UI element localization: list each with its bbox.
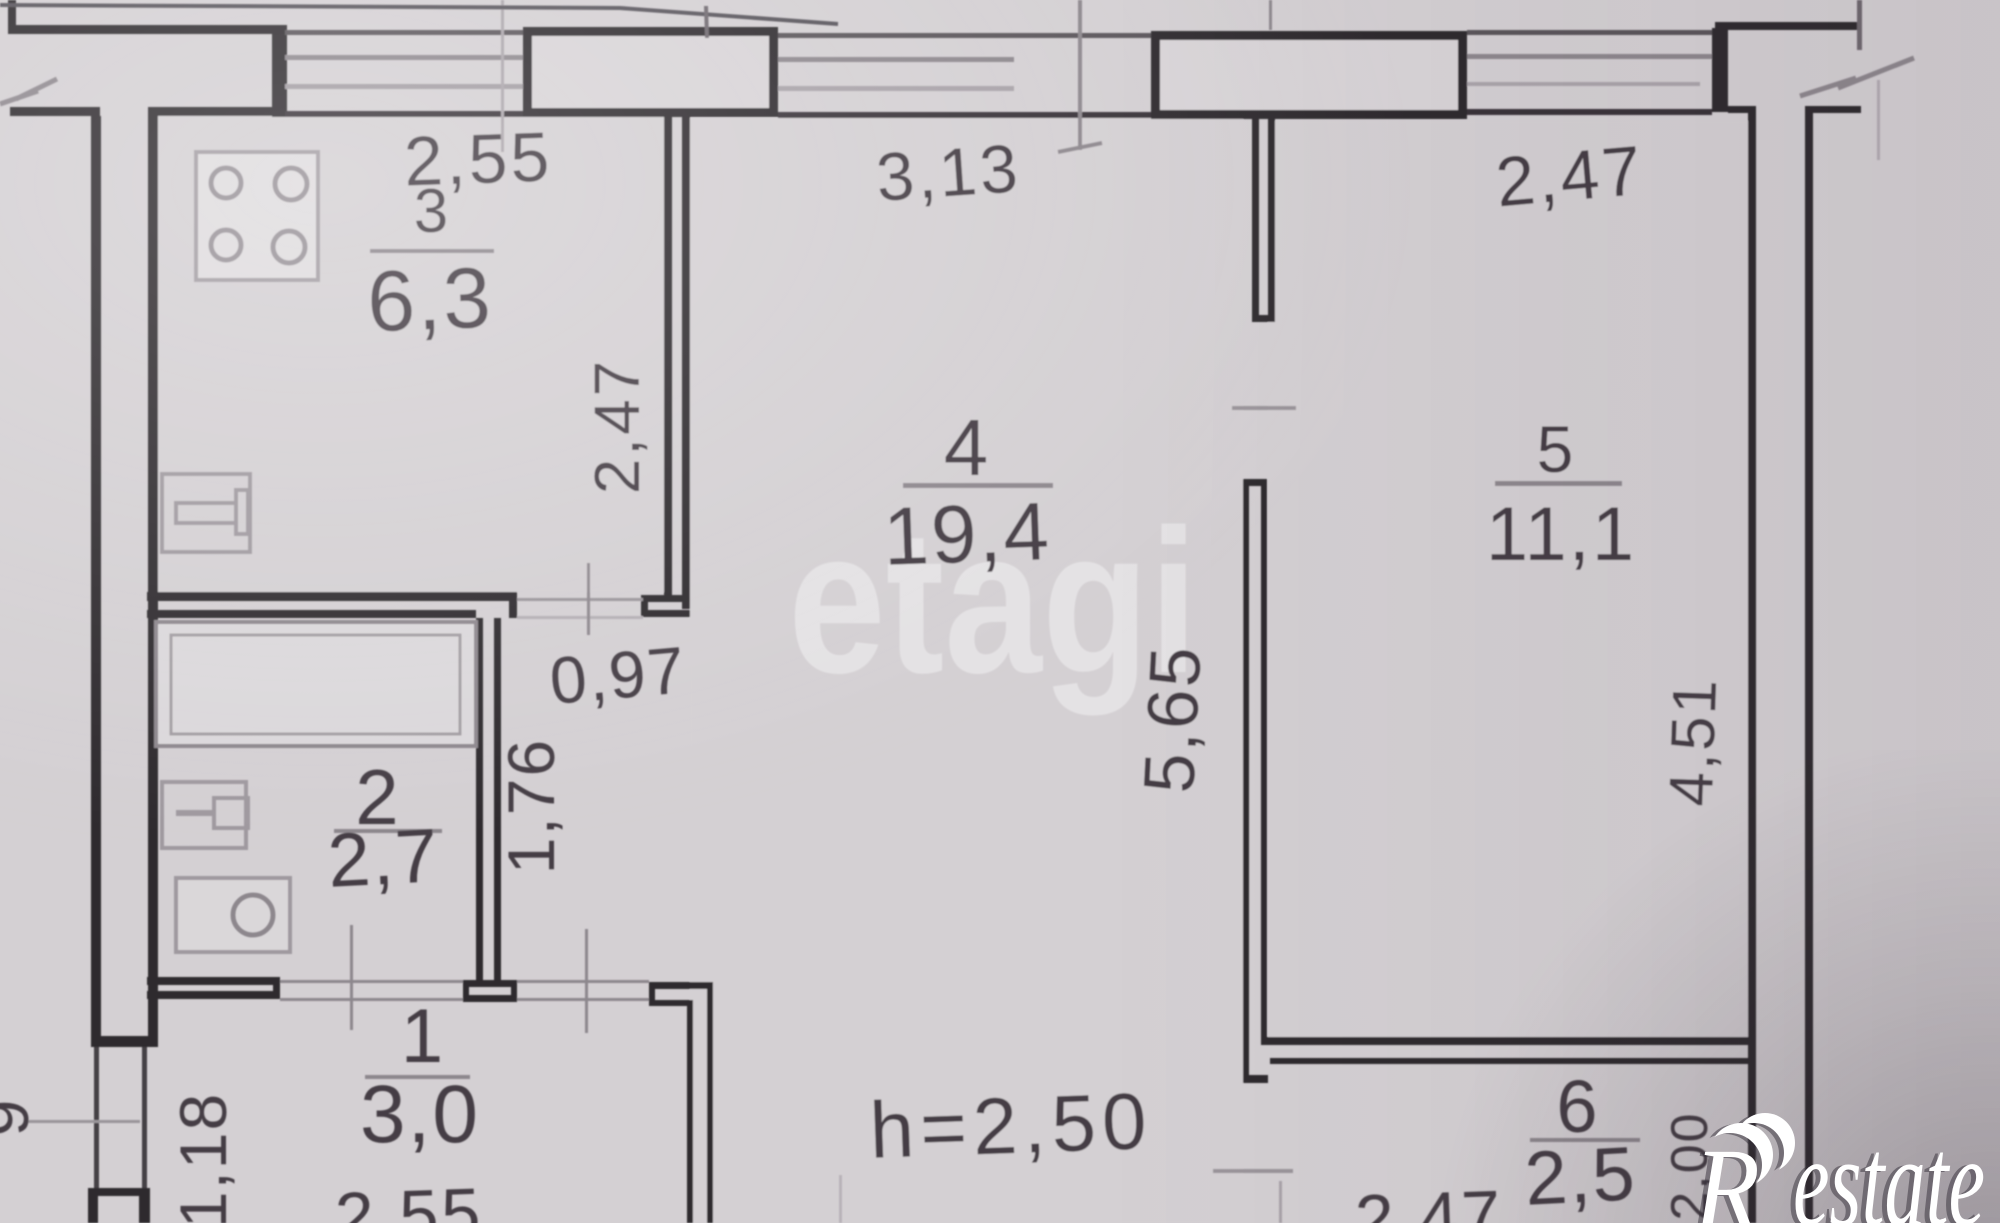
svg-text:R: R bbox=[1693, 1124, 1760, 1223]
svg-text:estate: estate bbox=[1793, 1111, 1985, 1223]
